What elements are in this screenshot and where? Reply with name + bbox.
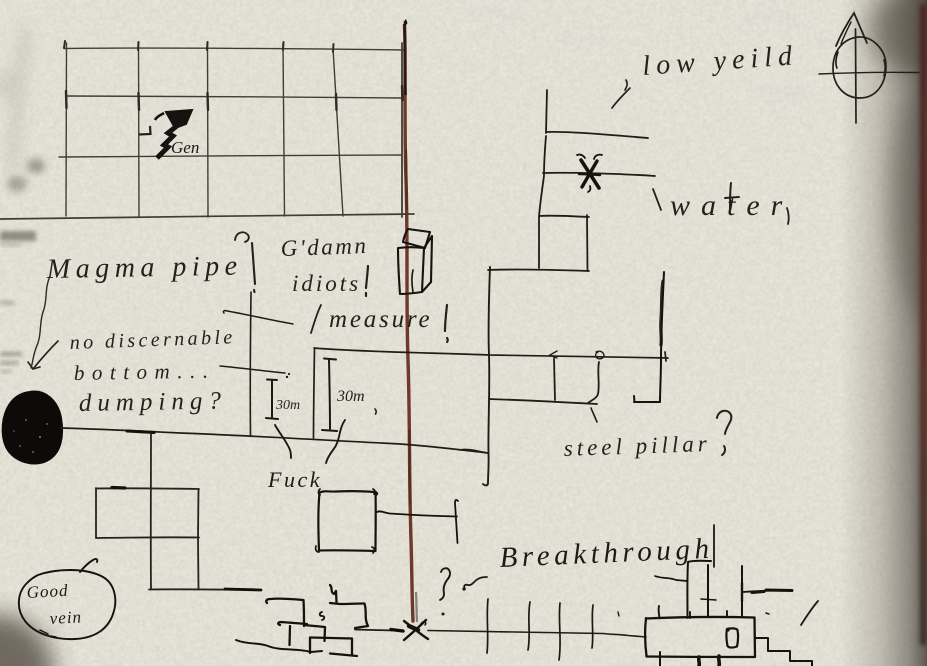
svg-text:steel pillar: steel pillar [563, 431, 711, 461]
svg-text:bottom...: bottom... [74, 359, 216, 385]
svg-text:Gen: Gen [171, 138, 199, 157]
svg-text:measure: measure [329, 306, 432, 333]
svg-text:Magma pipe: Magma pipe [46, 251, 243, 285]
svg-text:dumping?: dumping? [79, 387, 227, 417]
svg-text:30m: 30m [275, 398, 300, 413]
svg-text:30m: 30m [336, 388, 365, 405]
svg-text:Fuck: Fuck [267, 467, 322, 492]
svg-text:vein: vein [49, 607, 82, 628]
svg-text:water: water [670, 189, 793, 222]
svg-text:G'damn: G'damn [280, 233, 368, 261]
svg-text:idiots: idiots [292, 271, 361, 296]
svg-text:Good: Good [26, 581, 69, 602]
